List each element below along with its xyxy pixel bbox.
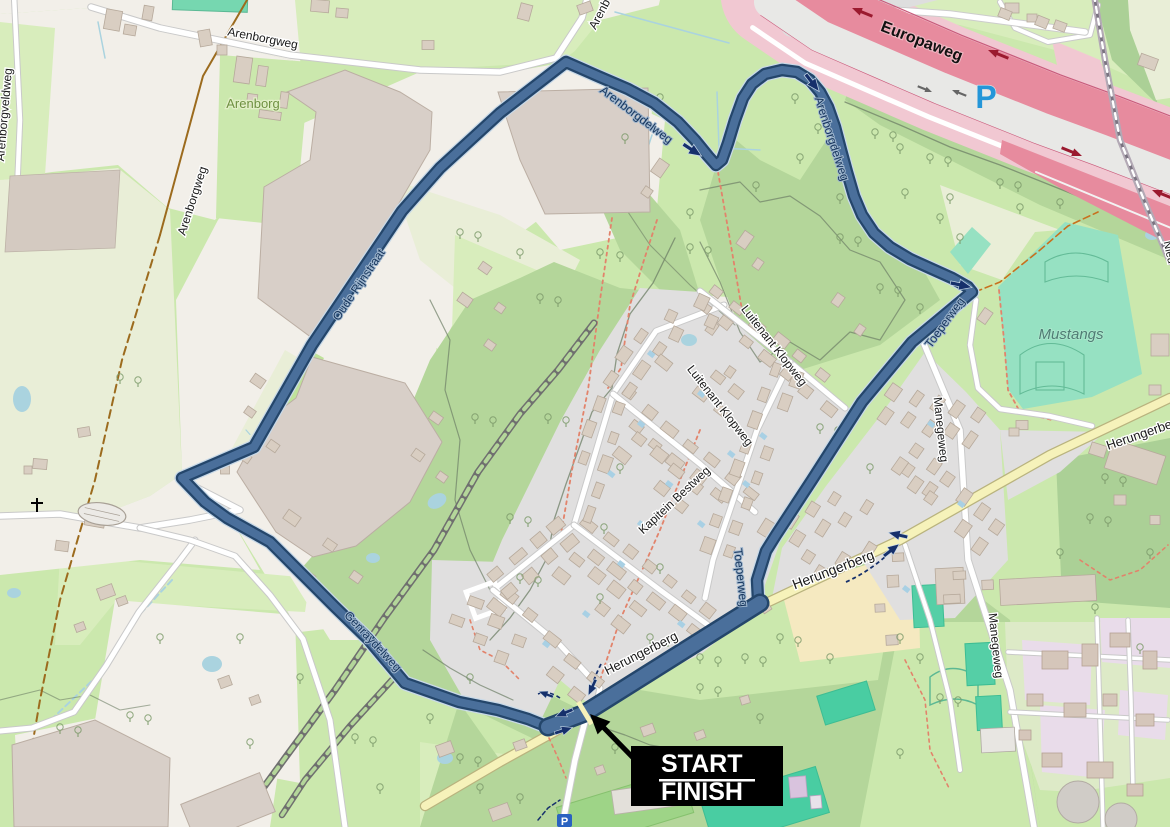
svg-text:Mustangs: Mustangs [1038,326,1104,343]
svg-text:FINISH: FINISH [661,778,743,806]
svg-text:P: P [561,816,568,827]
svg-text:Arenborg: Arenborg [226,96,279,111]
svg-text:P: P [975,79,996,115]
svg-text:START: START [661,750,742,778]
